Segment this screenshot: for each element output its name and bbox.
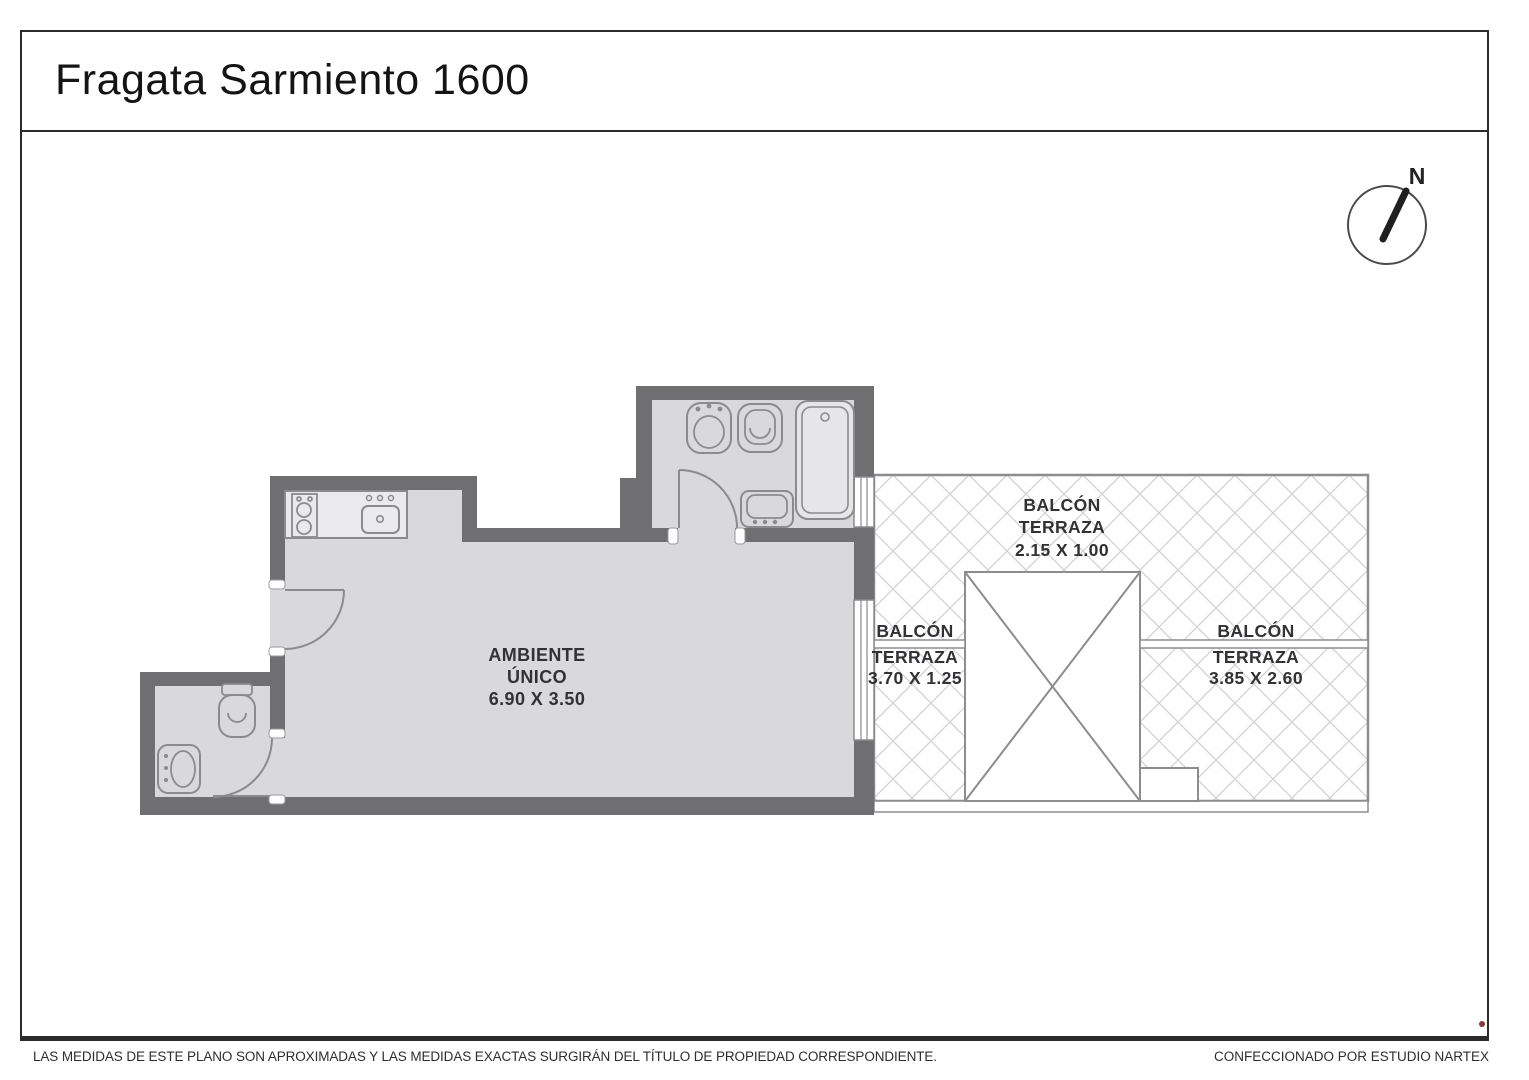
credit-text: CONFECCIONADO POR ESTUDIO NARTEX (1214, 1049, 1489, 1064)
main-room-dims: 6.90 X 3.50 (489, 689, 585, 709)
apartment-floors (155, 400, 854, 797)
wall (270, 476, 477, 490)
wall (854, 400, 874, 477)
wall (462, 490, 477, 528)
floor-plan-svg: AMBIENTE ÚNICO 6.90 X 3.50 BALCÓN TERRAZ… (0, 0, 1529, 1080)
balcony-terrace-area (874, 475, 1368, 812)
balcony-left-label-line1: BALCÓN (876, 620, 953, 641)
bidet (687, 403, 731, 453)
wall (270, 490, 285, 588)
wall (636, 386, 874, 400)
window-bathroom-to-balcony (854, 477, 874, 527)
wall (735, 528, 854, 542)
wall (854, 740, 874, 815)
compass-north-label: N (1409, 163, 1426, 189)
page: Fragata Sarmiento 1600 (0, 0, 1529, 1080)
balcony-left-label-line2: TERRAZA (872, 647, 958, 667)
balcony-top-dims: 2.15 X 1.00 (1015, 540, 1109, 560)
disclaimer-text: LAS MEDIDAS DE ESTE PLANO SON APROXIMADA… (33, 1049, 937, 1064)
bathroom-sink (158, 745, 200, 793)
balcony-right-dims: 3.85 X 2.60 (1209, 668, 1303, 688)
wall (636, 400, 652, 528)
wall (140, 686, 155, 812)
kitchen (285, 491, 407, 538)
bathroom-sink (741, 491, 793, 527)
bathroom-top-door-gap-floor (678, 528, 735, 542)
toilet (738, 404, 782, 452)
balcony-top-label-line2: TERRAZA (1019, 517, 1105, 537)
red-dot-mark (1479, 1021, 1485, 1027)
balcony-left-dims: 3.70 X 1.25 (868, 668, 962, 688)
main-room-label-line1: AMBIENTE (488, 645, 585, 665)
bathtub (796, 401, 854, 519)
entry-door-gap-floor (270, 588, 285, 648)
balcony-bottom-railing (874, 801, 1368, 812)
main-room-label-line2: ÚNICO (507, 666, 567, 687)
wall (462, 528, 678, 542)
wall (140, 797, 874, 815)
compass: N (1348, 163, 1426, 264)
windows (854, 477, 874, 740)
wall (140, 672, 285, 686)
toilet-with-tank (219, 684, 255, 737)
balcony-step (1140, 768, 1198, 801)
balcony-right-label-line1: BALCÓN (1217, 620, 1294, 641)
wall (854, 527, 874, 600)
balcony-top-label-line1: BALCÓN (1023, 494, 1100, 515)
balcony-right-label-line2: TERRAZA (1213, 647, 1299, 667)
